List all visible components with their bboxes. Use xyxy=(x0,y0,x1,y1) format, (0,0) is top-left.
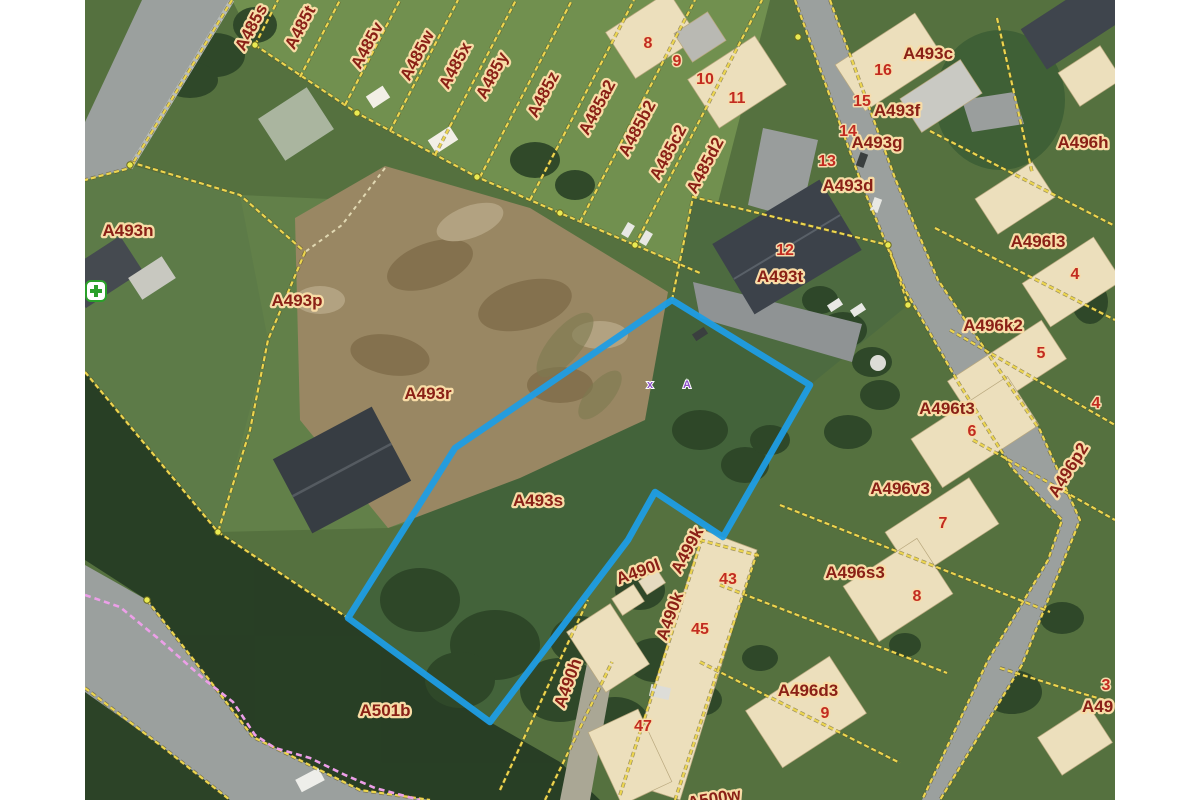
survey-mark: A xyxy=(683,379,691,391)
parcel-label: A496v3 xyxy=(870,479,930,498)
house-number: 4 xyxy=(1092,395,1101,412)
parcel-label: A493c xyxy=(903,44,953,63)
survey-mark: x xyxy=(647,379,654,391)
parcel-node xyxy=(885,242,891,248)
house-number: 6 xyxy=(968,423,977,440)
parcel-label: A493p xyxy=(271,291,322,310)
pharmacy-icon xyxy=(86,281,106,301)
parcel-label: A493g xyxy=(851,133,902,152)
house-number: 15 xyxy=(853,93,871,110)
parcel-node xyxy=(215,529,221,535)
parcel-label: A493n xyxy=(102,221,153,240)
house-number: 12 xyxy=(776,242,794,259)
parcel-label: A496d3 xyxy=(778,681,838,700)
house-number: 8 xyxy=(644,35,653,52)
parcel-label: A501b xyxy=(359,701,410,720)
parcel-label: A49 xyxy=(1082,697,1113,716)
parcel-label: A493f xyxy=(874,101,921,120)
map-canvas[interactable]: A485sA485tA485vA485wA485xA485yA485zA485a… xyxy=(85,0,1115,800)
parcel-label: A496s3 xyxy=(825,563,885,582)
parcel-node xyxy=(474,174,480,180)
parcel-node xyxy=(795,34,801,40)
house-number: 11 xyxy=(729,90,746,107)
parcel-label: A496t3 xyxy=(919,399,975,418)
house-number: 16 xyxy=(874,62,892,79)
house-number: 13 xyxy=(818,153,836,170)
parcel-node xyxy=(127,162,133,168)
parcel-node xyxy=(632,242,638,248)
parcel-label: A493t xyxy=(757,267,804,286)
parcel-node xyxy=(354,110,360,116)
parcel-node xyxy=(905,302,911,308)
house-number: 9 xyxy=(821,705,830,722)
parcel-label: A493s xyxy=(513,491,563,510)
aerial-cadastral-map-view: { "map": { "type": "cadastral-aerial-vie… xyxy=(0,0,1200,800)
house-number: 9 xyxy=(673,53,682,70)
house-number: 47 xyxy=(634,718,652,735)
house-number: 3 xyxy=(1102,677,1111,694)
parcel-label: A496k2 xyxy=(963,316,1023,335)
house-number: 45 xyxy=(691,621,709,638)
parcel-label: A493d xyxy=(822,176,873,195)
house-number: 8 xyxy=(913,588,922,605)
parcel-label: A496h xyxy=(1057,133,1108,152)
house-number: 43 xyxy=(719,571,737,588)
parcel-node xyxy=(144,597,150,603)
house-number: 7 xyxy=(939,515,948,532)
house-number: 14 xyxy=(839,123,857,140)
house-number: 5 xyxy=(1037,345,1046,362)
house-number: 4 xyxy=(1071,266,1080,283)
parcel-label: A496l3 xyxy=(1011,232,1066,251)
house-number: 10 xyxy=(696,71,714,88)
parcel-label: A493r xyxy=(404,384,452,403)
parcel-node xyxy=(557,210,563,216)
